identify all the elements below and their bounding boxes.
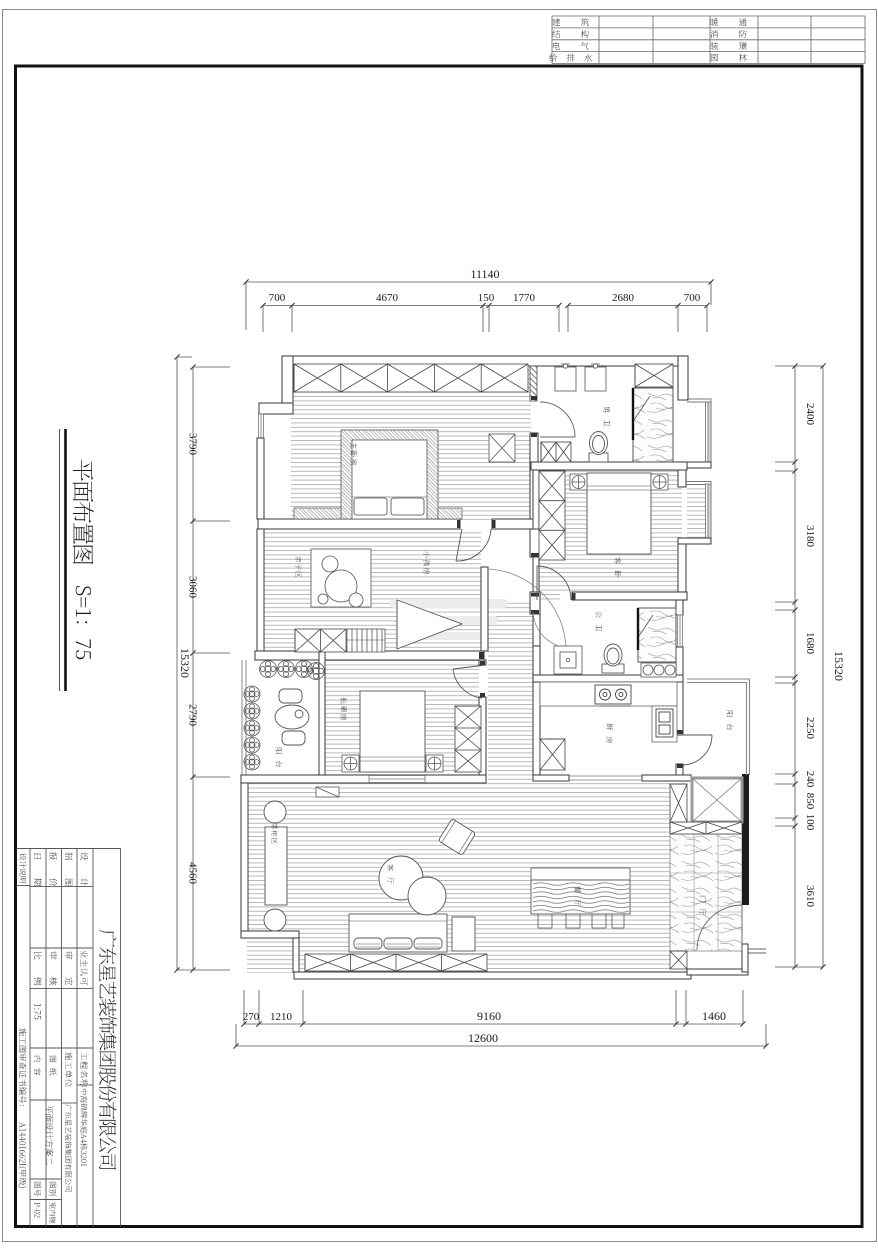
svg-text:150: 150 — [478, 292, 495, 304]
svg-text:15320: 15320 — [178, 648, 192, 678]
svg-text:1460: 1460 — [702, 1009, 726, 1023]
svg-text:15320: 15320 — [832, 651, 846, 681]
svg-text:3060: 3060 — [187, 576, 199, 599]
svg-text:270: 270 — [243, 1011, 260, 1023]
svg-text:3610: 3610 — [804, 885, 816, 908]
svg-text:4670: 4670 — [376, 292, 399, 304]
svg-text:3790: 3790 — [187, 433, 199, 456]
svg-text:700: 700 — [684, 292, 701, 304]
svg-text:2680: 2680 — [612, 292, 635, 304]
svg-text:1210: 1210 — [270, 1011, 293, 1023]
svg-text:1770: 1770 — [513, 292, 536, 304]
svg-text:1680: 1680 — [804, 632, 816, 655]
svg-text:11140: 11140 — [470, 267, 499, 281]
svg-text:240: 240 — [804, 771, 816, 788]
svg-text:2790: 2790 — [187, 704, 199, 727]
svg-text:4560: 4560 — [187, 862, 199, 885]
svg-text:12600: 12600 — [468, 1031, 498, 1045]
svg-text:700: 700 — [269, 292, 286, 304]
svg-text:2400: 2400 — [804, 403, 816, 426]
svg-text:3180: 3180 — [804, 525, 816, 548]
svg-text:9160: 9160 — [477, 1009, 501, 1023]
svg-text:2250: 2250 — [804, 717, 816, 740]
svg-text:100: 100 — [804, 814, 816, 831]
svg-text:850: 850 — [804, 793, 816, 810]
